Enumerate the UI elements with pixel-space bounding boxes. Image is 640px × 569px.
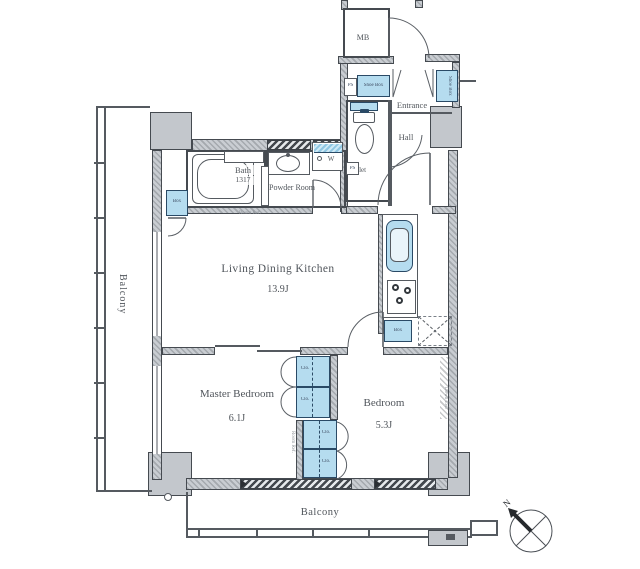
plan-overlay	[0, 0, 640, 569]
compass-icon	[508, 508, 552, 552]
floor-plan: MB PS Shoe Box Shoe Box Entrance Hall To…	[0, 0, 640, 569]
